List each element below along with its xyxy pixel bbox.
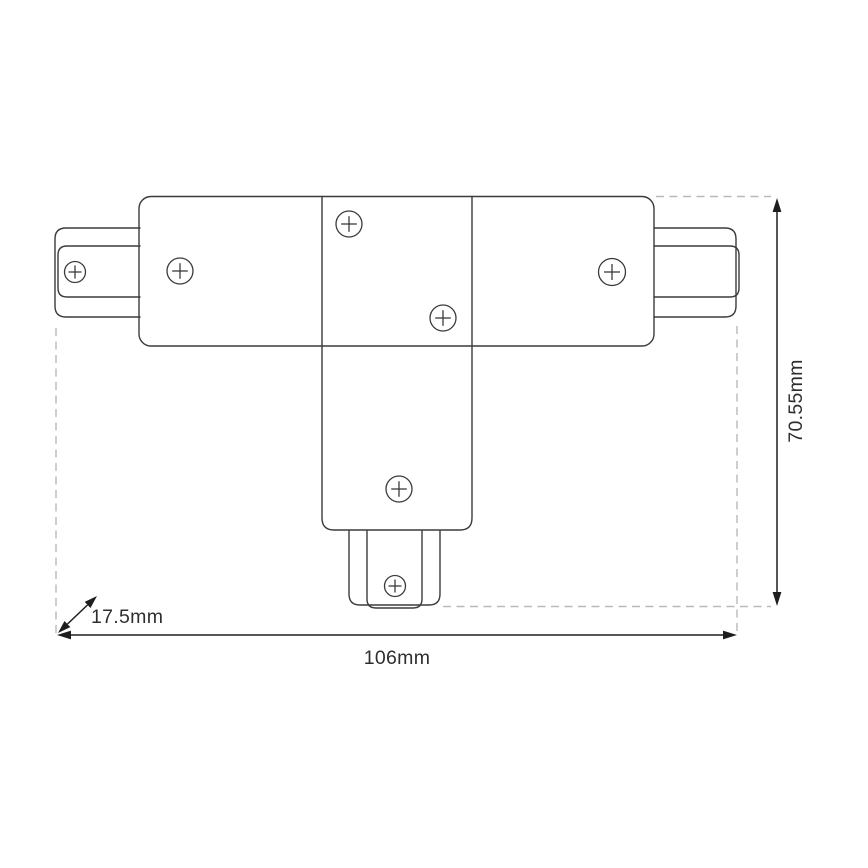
- depth-dimension-line: [68, 605, 88, 624]
- screw-icon: [167, 258, 193, 284]
- bottom-tab-outer: [349, 531, 440, 605]
- right-tab-outer: [654, 228, 736, 317]
- center-leg-outline: [322, 197, 472, 531]
- depth-dimension-label: 17.5mm: [91, 606, 163, 628]
- arrow-down-icon: [773, 592, 782, 606]
- height-dimension-label: 70.55mm: [785, 359, 807, 442]
- main-body-outline: [139, 197, 654, 347]
- width-dimension: 106mm: [57, 631, 737, 669]
- screw-icon: [65, 262, 86, 283]
- right-tab-inner: [654, 246, 739, 297]
- arrow-up-icon: [773, 198, 782, 212]
- screw-icon: [430, 305, 456, 331]
- arrow-right-icon: [723, 631, 737, 640]
- screw-icon: [336, 211, 362, 237]
- dashed-bounding-box: [56, 197, 771, 635]
- technical-drawing-canvas: 106mm 70.55mm 17.5mm: [0, 0, 868, 868]
- width-dimension-label: 106mm: [364, 647, 431, 669]
- depth-dimension: 17.5mm: [58, 596, 163, 633]
- screw-icon: [599, 259, 626, 286]
- height-dimension: 70.55mm: [773, 198, 807, 606]
- left-tab-outer: [55, 228, 140, 317]
- screws: [65, 211, 626, 597]
- connector-outline: [55, 197, 739, 609]
- screw-icon: [386, 476, 412, 502]
- screw-icon: [385, 576, 406, 597]
- t-connector-dimension-drawing: 106mm 70.55mm 17.5mm: [0, 0, 868, 868]
